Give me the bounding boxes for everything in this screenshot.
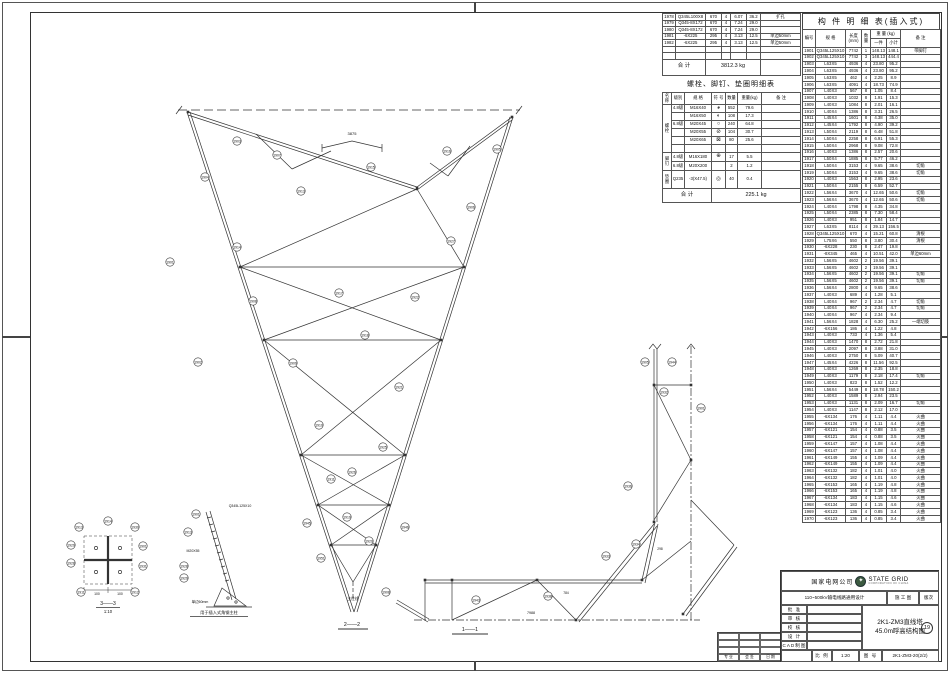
table-cell (901, 359, 941, 366)
table-cell: 1.84 (871, 217, 887, 224)
signature-cell (718, 633, 739, 640)
table-cell: 19.56 (871, 278, 887, 285)
table-cell: 8 (862, 393, 871, 400)
table-cell (901, 156, 941, 163)
table-cell (901, 75, 941, 82)
main-elevation-truss (176, 106, 522, 612)
table-cell: 1885 (846, 156, 862, 163)
table-cell: 7742 (846, 48, 862, 55)
table-cell: 462 (846, 75, 862, 82)
table-cell (672, 137, 685, 145)
signature-label: 专 业 (718, 654, 739, 661)
table-cell: 42.0 (887, 251, 901, 258)
table-cell: 156.5 (887, 224, 901, 231)
table-cell (762, 153, 801, 162)
table-cell (901, 265, 941, 272)
bolt-header: 重量(kg) (738, 93, 762, 105)
table-cell: 17.3 (738, 113, 762, 121)
table-cell: 23.5 (887, 393, 901, 400)
part-callout-number: 1943 (472, 598, 480, 602)
table-cell: L63X5 (816, 224, 846, 231)
table-cell: 4 (862, 454, 871, 461)
table-cell: 39.1 (887, 258, 901, 265)
bolt-symbol-icon: ◎ (712, 171, 726, 189)
table-cell: 0.85 (871, 515, 887, 522)
bolt-header: 级别 (672, 93, 685, 105)
signature-cell (718, 640, 739, 647)
table-row: 1959-6X14715741.084.4火曲 (803, 441, 941, 448)
table-cell: 552 (726, 105, 738, 113)
table-cell: 1911 (803, 115, 816, 122)
dimension-label: 784 (563, 591, 569, 595)
sheet-number-badge: 19 (921, 622, 933, 634)
table-row: 编号规 格长度 (mm)数 量重 量 (kg)备 注 (803, 30, 941, 39)
brand-subtitle: CORPORATION OF CHINA (868, 583, 908, 586)
part-callout-number: 1914 (104, 519, 112, 523)
dimension-label: 100 (117, 592, 123, 596)
table-cell: 4602 (846, 258, 862, 265)
table-cell: 1.15 (871, 495, 887, 502)
part-callout-number: 1911 (77, 590, 84, 594)
table-row: 1914L50X4225886.9155.3 (803, 136, 941, 143)
table-cell: 8 (862, 217, 871, 224)
table-cell: 50.6 (887, 190, 901, 197)
table-cell: 26.5 (887, 109, 901, 116)
table-cell: 4 (862, 509, 871, 516)
table-cell: 4.4 (887, 420, 901, 427)
table-cell (901, 407, 941, 414)
table-cell (901, 176, 941, 183)
truss-node (451, 579, 454, 582)
table-cell: 4 (862, 190, 871, 197)
table-cell: 10.51 (871, 251, 887, 258)
part-callout-number: 1946 (401, 525, 409, 529)
table-cell (901, 149, 941, 156)
table-cell: 136 (846, 509, 862, 516)
table-cell: 4.8 (887, 488, 901, 495)
table-cell (901, 142, 941, 149)
drawing-number: 2K1-ZM3-20(2/2) (893, 653, 928, 658)
table-cell (901, 380, 941, 387)
table-row: 1931-8X345465410.5142.0单边60mm (803, 251, 941, 258)
part-callout-number: 1911 (327, 477, 334, 481)
group-name: 脚 钉 (663, 153, 672, 171)
table-cell: 切角 (901, 190, 941, 197)
table-cell: 4.38 (871, 115, 887, 122)
table-row: 1950L40X382381.5212.2 (803, 380, 941, 387)
table-cell: 4.4 (887, 454, 901, 461)
part-callout-number: 1929 (180, 576, 188, 580)
table-cell: 4 (862, 482, 871, 489)
table-cell: 4936 (846, 68, 862, 75)
table-cell: 1.28 (871, 292, 887, 299)
table-cell: 8114 (846, 224, 862, 231)
table-row: 1965-6X15316541.194.8火曲 (803, 482, 941, 489)
state-grid-logo-icon: ✦ (855, 576, 866, 587)
table-cell: L40X3 (816, 393, 846, 400)
table-cell: 长度 (mm) (846, 30, 862, 48)
table-cell: L50X4 (816, 163, 846, 170)
truss-node (300, 454, 303, 457)
table-cell: 4 (862, 420, 871, 427)
signature-cell (760, 633, 781, 640)
table-row: 1909L40X3108482.0116.1 (803, 102, 941, 109)
table-row: 1942-6X15618641.224.8 (803, 326, 941, 333)
table-cell: Q345L125X10 (816, 54, 846, 61)
table-cell (901, 366, 941, 373)
table-cell: 21.8 (887, 339, 901, 346)
signature-cell (718, 647, 739, 654)
table-cell: 1939 (803, 305, 816, 312)
table-cell: 150.2 (887, 387, 901, 394)
table-row: 1957-6X12115440.883.5火曲 (803, 427, 941, 434)
table-cell: 1470 (846, 339, 862, 346)
table-cell: 1905 (803, 75, 816, 82)
table-row: 名称级别规 格符 号数量重量(kg)备 注 (663, 93, 801, 105)
table-cell: 2.94 (871, 393, 887, 400)
table-cell (901, 115, 941, 122)
part-callout-number: 1934 (632, 542, 640, 546)
part-callout-number: 1919 (343, 515, 351, 519)
table-cell (901, 224, 941, 231)
bolt-header: 符 号 (712, 93, 726, 105)
table-cell: 切角 (901, 271, 941, 278)
table-cell: 2 (726, 162, 738, 171)
table-cell: 8 (862, 142, 871, 149)
table-cell: 20.6 (887, 149, 901, 156)
table-cell: 1949 (803, 373, 816, 380)
table-cell: 4.7 (887, 305, 901, 312)
table-cell: 火曲 (901, 502, 941, 509)
table-cell: 967 (846, 298, 862, 305)
table-cell (901, 312, 941, 319)
truss-node (653, 384, 656, 387)
table-cell: 4 (862, 197, 871, 204)
table-cell: 1951 (803, 387, 816, 394)
table-cell: 2119 (846, 129, 862, 136)
scale-value: 1:20 (841, 653, 850, 658)
table-row: 1941L56X4182846.3025.2一端切肢 (803, 319, 941, 326)
table-cell: 35.0 (887, 115, 901, 122)
table-cell: 火曲 (901, 475, 941, 482)
table-cell: 1957 (803, 427, 816, 434)
generated-annotations: 1903190719151904191319161905190619271914… (67, 111, 705, 622)
table-cell (762, 105, 801, 113)
table-cell: 1 (862, 48, 871, 55)
table-cell: 2.72 (871, 339, 887, 346)
table-cell: 72.8 (887, 142, 901, 149)
table-cell: 6.48 (871, 129, 887, 136)
bolt-header: 名称 (663, 93, 672, 105)
table-cell: 4.4 (887, 414, 901, 421)
table-cell: 1928 (803, 231, 816, 238)
bolt-header: 备 注 (762, 93, 801, 105)
table-cell: 8.9 (887, 75, 901, 82)
table-cell: 136 (846, 515, 862, 522)
table-cell: 8 (862, 109, 871, 116)
table-cell (901, 129, 941, 136)
table-cell: 2.34 (871, 305, 887, 312)
table-row: 1952L40X3158982.9423.5 (803, 393, 941, 400)
table-cell: 8 (862, 366, 871, 373)
table-cell: 4.4 (887, 448, 901, 455)
table-cell: 8 (862, 156, 871, 163)
table-cell (762, 129, 801, 137)
part-callout-number: 1908 (249, 299, 257, 303)
truss-node (330, 544, 333, 547)
table-cell: 火曲 (901, 448, 941, 455)
table-cell: 数 量 (862, 30, 871, 48)
table-cell: -6X123 (816, 509, 846, 516)
table-cell: 444.4 (887, 54, 901, 61)
table-cell (901, 332, 941, 339)
table-cell (762, 162, 801, 171)
table-cell: 4.4 (887, 441, 901, 448)
table-row: 1951L56X45449818.78150.2 (803, 387, 941, 394)
table-cell: 19.8 (887, 244, 901, 251)
table-row: 1903L63X54936423.8095.2 (803, 61, 941, 68)
table-cell: 4602 (846, 271, 862, 278)
table-row: M20X55⊘10430.7 (663, 129, 801, 137)
truss-node (388, 504, 391, 507)
table-cell (901, 54, 941, 61)
table-cell: 1921 (803, 183, 816, 190)
table-row: 1933L56X54602219.5639.1 (803, 265, 941, 272)
table-cell: 14.7 (887, 217, 901, 224)
table-cell: L40X4 (816, 305, 846, 312)
table-cell: 38.6 (887, 163, 901, 170)
table-cell: 4.8 (887, 326, 901, 333)
table-cell: 1.08 (871, 448, 887, 455)
table-cell: L75X6 (816, 237, 846, 244)
dimension-label: 298 (657, 547, 663, 551)
table-cell: 1.22 (871, 326, 887, 333)
table-cell: 1924 (803, 203, 816, 210)
table-cell: 30.7 (738, 129, 762, 137)
table-cell: 2 (862, 265, 871, 272)
table-cell: 1941 (803, 319, 816, 326)
table-cell: 12.65 (871, 197, 887, 204)
table-cell: 15.3 (887, 95, 901, 102)
part-callout-number: 1930 (131, 525, 139, 529)
table-cell: 18.8 (887, 366, 901, 373)
bolt-symbol-icon: ◐ (712, 113, 726, 121)
table-cell: 清根 (901, 237, 941, 244)
table-cell: 2.47 (871, 244, 887, 251)
table-cell: -6X156 (816, 326, 846, 333)
table-cell: -6X121 (816, 427, 846, 434)
table-cell: 4 (862, 434, 871, 441)
table-cell: 3.4 (887, 515, 901, 522)
table-cell: 4 (862, 448, 871, 455)
part-callout-number: 1902 (194, 360, 202, 364)
group-name: 螺 栓 (663, 105, 672, 153)
table-cell: L40X3 (816, 88, 846, 95)
table-cell: 1927 (803, 224, 816, 231)
truss-node (653, 521, 656, 524)
table-cell: 1.05 (871, 88, 887, 95)
table-cell: 8 (862, 183, 871, 190)
table-row: 垫 圈Q235-3(X47.5)◎400.4 (663, 171, 801, 189)
part-callout-number: 1938 (544, 594, 552, 598)
table-cell: 8.4 (887, 88, 901, 95)
table-cell: -6X153 (816, 488, 846, 495)
truss-node (424, 579, 427, 582)
member-table: 构 件 明 细 表(插入式) 编号规 格长度 (mm)数 量重 量 (kg)备 … (802, 13, 940, 523)
table-cell: L40X3 (816, 346, 846, 353)
table-cell: 689 (846, 292, 862, 299)
table-cell: L40X3 (816, 373, 846, 380)
table-cell: M20X65 (685, 137, 712, 145)
bolt-symbol-icon (712, 145, 726, 153)
table-cell: 2800 (846, 285, 862, 292)
dimension-label: 单边60mm (192, 599, 209, 604)
table-cell: 1.01 (871, 475, 887, 482)
table-cell: 4 (862, 224, 871, 231)
table-cell: 2.95 (871, 176, 887, 183)
table-cell: 带脚钉 (901, 48, 941, 55)
table-row: 1908L40X3103281.9115.3 (803, 95, 941, 102)
table-cell: 火曲 (901, 495, 941, 502)
table-cell: 4226 (846, 359, 862, 366)
bolt-symbol-icon (712, 162, 726, 171)
table-cell: 4 (862, 326, 871, 333)
table-cell: 79.6 (738, 105, 762, 113)
table-cell (901, 353, 941, 360)
table-cell (672, 113, 685, 121)
table-cell: L40X4 (816, 109, 846, 116)
table-row: 合 计3812.3 kg (663, 59, 801, 76)
table-cell: 30.4 (887, 237, 901, 244)
table-row: 1910L40X4138683.3126.5 (803, 109, 941, 116)
table-cell: 51.8 (887, 129, 901, 136)
table-cell: 切角 (901, 298, 941, 305)
table-cell: 465 (846, 251, 862, 258)
table-cell: L45X4 (816, 122, 846, 129)
table-row: M20X65⊠8025.6 (663, 137, 801, 145)
part-callout-number: 1929 (67, 543, 75, 547)
table-cell: L40X4 (816, 203, 846, 210)
table-cell (901, 88, 941, 95)
table-cell: -6X228 (816, 244, 846, 251)
table-cell: 4 (862, 515, 871, 522)
table-cell: 3.80 (871, 237, 887, 244)
table-cell: 39.2 (887, 122, 901, 129)
table-cell: 4.0 (887, 475, 901, 482)
table-cell: 4602 (846, 278, 862, 285)
table-row: 1969-6X12313640.853.4火曲 (803, 509, 941, 516)
table-cell (672, 129, 685, 137)
table-cell: 25.6 (738, 137, 762, 145)
signature-cell (739, 647, 760, 654)
table-row: 1962-6X14915541.094.4火曲 (803, 461, 941, 468)
table-cell (901, 210, 941, 217)
table-cell: 16.1 (887, 102, 901, 109)
table-cell: L40X3 (816, 339, 846, 346)
table-cell: -6X123 (816, 515, 846, 522)
part-callout-number: 1917 (335, 291, 343, 295)
table-cell: 火曲 (901, 482, 941, 489)
signature-label: 会 签 (739, 654, 760, 661)
table-row: 脚 钉4.8级M16X180⊕175.5 (663, 153, 801, 162)
table-cell: 1942 (803, 326, 816, 333)
table-cell: 183 (846, 502, 862, 509)
table-row: 1949L40X3117982.1817.4切角 (803, 373, 941, 380)
part-callout-number: 1906 (467, 205, 475, 209)
dimension-label: 3875 (348, 131, 358, 136)
stage-label: 施 工 图 (895, 595, 911, 601)
dimension-label: M20X55 (186, 549, 199, 553)
truss-node (187, 111, 190, 114)
table-cell: 1940 (803, 312, 816, 319)
table-cell: 1970 (803, 515, 816, 522)
total-label: 合 计 (663, 59, 706, 76)
table-cell: 1958 (803, 434, 816, 441)
table-cell (901, 339, 941, 346)
table-cell: 4 (862, 502, 871, 509)
table-cell: L56X5 (816, 278, 846, 285)
table-row: 1926L40X395181.8414.7 (803, 217, 941, 224)
table-cell: 1938 (803, 298, 816, 305)
table-cell: 一件 (871, 39, 887, 48)
table-cell: 46.2 (887, 156, 901, 163)
table-cell: 6.91 (871, 136, 887, 143)
table-cell: 60.8 (887, 231, 901, 238)
table-cell: L63X5 (816, 61, 846, 68)
table-row: 1929L75X655083.8030.4清根 (803, 237, 941, 244)
bolt-symbol-icon: ⊘ (712, 129, 726, 137)
table-cell: 编号 (803, 30, 816, 48)
table-row: 1920L40X3156382.9523.6 (803, 176, 941, 183)
table-cell: 6.59 (871, 183, 887, 190)
table-cell: 80 (726, 137, 738, 145)
table-cell: 1909 (803, 102, 816, 109)
axis-label: 主柱线 (347, 596, 359, 601)
table-cell: 火曲 (901, 427, 941, 434)
table-cell: 1919 (803, 170, 816, 177)
table-cell: 3.5 (887, 434, 901, 441)
table-cell: 12.2 (887, 380, 901, 387)
table-cell: 50.6 (887, 197, 901, 204)
table-cell: L40X3 (816, 407, 846, 414)
table-cell: 0.4 (738, 171, 762, 189)
table-cell: L63X5 (816, 75, 846, 82)
table-cell: 176 (846, 420, 862, 427)
table-cell: 1954 (803, 407, 816, 414)
table-cell: 2097 (846, 346, 862, 353)
table-cell: 1947 (803, 359, 816, 366)
table-cell (901, 326, 941, 333)
table-cell: -6X153 (816, 482, 846, 489)
part-callout-number: 1908 (382, 590, 390, 594)
table-cell: 1.09 (871, 454, 887, 461)
table-cell: L56X4 (816, 319, 846, 326)
table-cell: 4.4 (887, 461, 901, 468)
table-cell: 2.18 (871, 373, 887, 380)
drawing-number-cell: 2K1-ZM3-20(2/2) (881, 649, 939, 662)
table-cell: 火曲 (901, 461, 941, 468)
table-cell (901, 109, 941, 116)
table-cell: 183 (846, 495, 862, 502)
part-callout-number: 1931 (139, 564, 147, 568)
table-cell: 186 (846, 326, 862, 333)
table-row: 1928Q345L125X10670415.2160.8清根 (803, 231, 941, 238)
table-cell: L40X3 (816, 380, 846, 387)
table-cell: 2.57 (871, 149, 887, 156)
table-cell: 1798 (846, 203, 862, 210)
table-row: 1970-6X12313640.853.4火曲 (803, 515, 941, 522)
table-cell: 5449 (846, 387, 862, 394)
